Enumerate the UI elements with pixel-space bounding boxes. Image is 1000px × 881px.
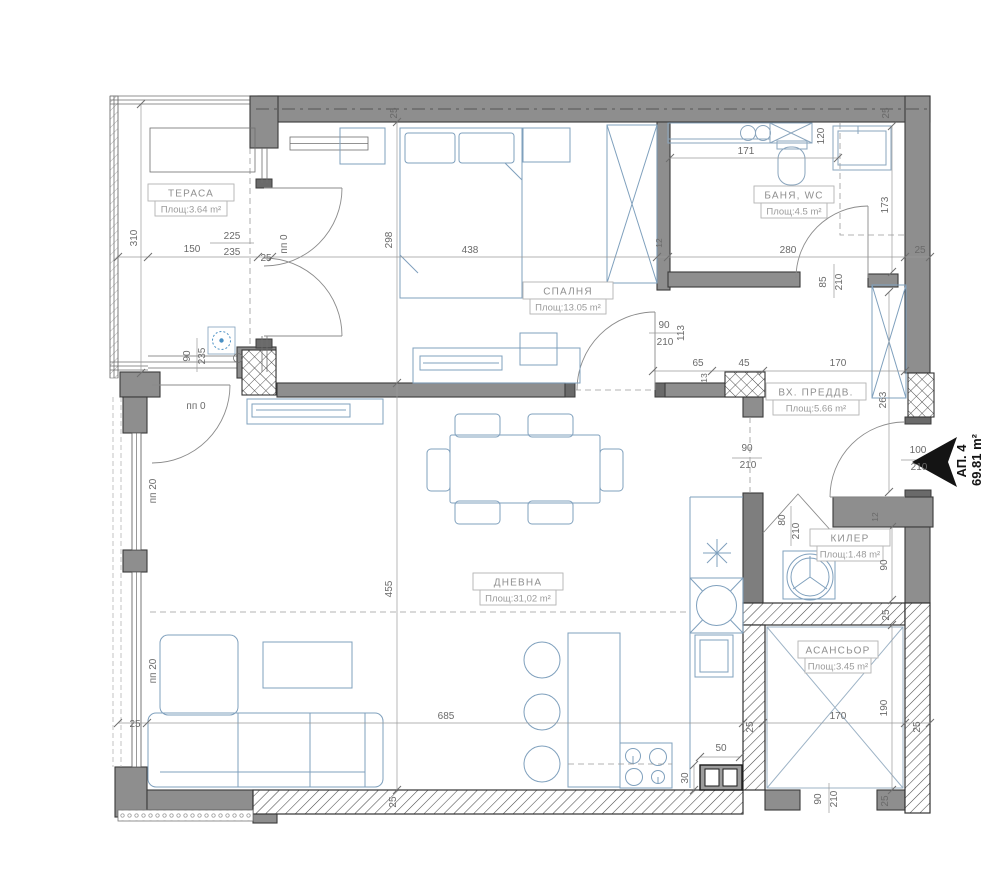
dimension-label: 80 xyxy=(777,514,788,526)
room-label-elevator: АСАНСЬОРПлощ:3.45 m² xyxy=(798,641,878,673)
dimension-label: 235 xyxy=(224,247,241,258)
room-area: Площ:4.5 m² xyxy=(766,207,821,218)
dimension-label: 190 xyxy=(879,699,890,716)
dimension-label: 210 xyxy=(657,337,674,348)
dimension-label: 90 xyxy=(879,559,890,571)
dimension-label: 50 xyxy=(715,743,727,754)
dimension-label: 171 xyxy=(738,146,755,157)
dimension-label: 150 xyxy=(184,244,201,255)
room-name: АСАНСЬОР xyxy=(806,646,871,657)
room-name: ТЕРАСА xyxy=(168,189,214,200)
room-name: БАНЯ, WC xyxy=(764,191,823,202)
apartment-number: АП. 4 xyxy=(954,444,969,478)
star-symbol xyxy=(703,539,731,567)
dimension-label: 25 xyxy=(914,245,926,256)
room-label-closet: КИЛЕРПлощ:1.48 m² xyxy=(810,529,890,561)
room-area: Площ:13.05 m² xyxy=(535,303,601,314)
floor-plan: АП. 4 69.81 m² ТЕРАСАПлощ:3.64 m²СПАЛНЯП… xyxy=(0,0,1000,881)
dimension-label: 438 xyxy=(462,245,479,256)
duct-shaft xyxy=(700,765,742,790)
dimension-label: 173 xyxy=(880,196,891,213)
dimension-label: 90 xyxy=(813,793,824,805)
dimension-label: 685 xyxy=(438,711,455,722)
dimension-label: 210 xyxy=(911,462,928,473)
floor-plan-drawing: АП. 4 69.81 m² ТЕРАСАПлощ:3.64 m²СПАЛНЯП… xyxy=(0,0,1000,881)
dimension-label: 25 xyxy=(881,107,892,119)
room-label-bathroom: БАНЯ, WCПлощ:4.5 m² xyxy=(754,186,834,218)
dimension-label: 13 xyxy=(699,373,709,383)
dimension-label: пп 20 xyxy=(148,658,159,683)
dimension-label: 90 xyxy=(741,443,753,454)
room-name: СПАЛНЯ xyxy=(543,287,593,298)
dimension-label: 298 xyxy=(384,231,395,248)
dimension-label: 25 xyxy=(912,721,923,733)
room-label-bedroom: СПАЛНЯПлощ:13.05 m² xyxy=(523,282,613,314)
dimension-label: 210 xyxy=(834,273,845,290)
room-name: ВХ. ПРЕДДВ. xyxy=(778,388,853,399)
dimension-label: 90 xyxy=(658,320,670,331)
dimension-label: пп 0 xyxy=(186,401,206,412)
dimension-label: 170 xyxy=(830,711,847,722)
dimension-label: 25 xyxy=(745,721,756,733)
dimension-label: 455 xyxy=(384,580,395,597)
dimension-label: 90 xyxy=(182,350,193,362)
room-area: Площ:5.66 m² xyxy=(786,404,846,415)
dimension-label: 25 xyxy=(388,796,399,808)
dimension-label: 100 xyxy=(910,445,927,456)
room-area: Площ:3.64 m² xyxy=(161,205,221,216)
dimension-label: 210 xyxy=(740,460,757,471)
dimension-label: 65 xyxy=(692,358,704,369)
dimension-label: 25 xyxy=(260,253,272,264)
dimension-label: 120 xyxy=(816,127,827,144)
dimension-label: 280 xyxy=(780,245,797,256)
dimension-label: 12 xyxy=(654,238,664,248)
dimension-label: 85 xyxy=(818,276,829,288)
dimension-label: 30 xyxy=(680,772,691,784)
dimension-label: пп 0 xyxy=(279,234,290,254)
dimension-label: 25 xyxy=(880,795,891,807)
room-area: Площ:31,02 m² xyxy=(485,594,551,605)
room-area: Площ:1.48 m² xyxy=(820,550,880,561)
dimension-label: 310 xyxy=(129,229,140,246)
apartment-area: 69.81 m² xyxy=(969,433,984,486)
room-name: ДНЕВНА xyxy=(494,578,542,589)
dimension-label: 25 xyxy=(881,609,892,621)
dimension-label: 25 xyxy=(129,719,141,730)
insulation-band xyxy=(118,810,253,821)
room-label-terrace: ТЕРАСАПлощ:3.64 m² xyxy=(148,184,234,216)
room-area: Площ:3.45 m² xyxy=(808,662,868,673)
kitchen-sink xyxy=(690,578,743,633)
dimension-label: 210 xyxy=(791,522,802,539)
dimension-label: 25 xyxy=(389,107,400,119)
dimension-label: 12 xyxy=(870,512,880,522)
dimension-label: 235 xyxy=(197,347,208,364)
dimension-label: 113 xyxy=(676,325,687,341)
dimension-label: 263 xyxy=(878,391,889,408)
dimension-label: 45 xyxy=(738,358,750,369)
dimension-label: 225 xyxy=(224,231,241,242)
dimension-label: пп 20 xyxy=(148,478,159,503)
dimension-label: 210 xyxy=(829,790,840,807)
room-label-entry: ВХ. ПРЕДДВ.Площ:5.66 m² xyxy=(766,383,866,415)
room-name: КИЛЕР xyxy=(831,534,870,545)
room-label-living: ДНЕВНАПлощ:31,02 m² xyxy=(473,573,563,605)
dimension-label: 170 xyxy=(830,358,847,369)
